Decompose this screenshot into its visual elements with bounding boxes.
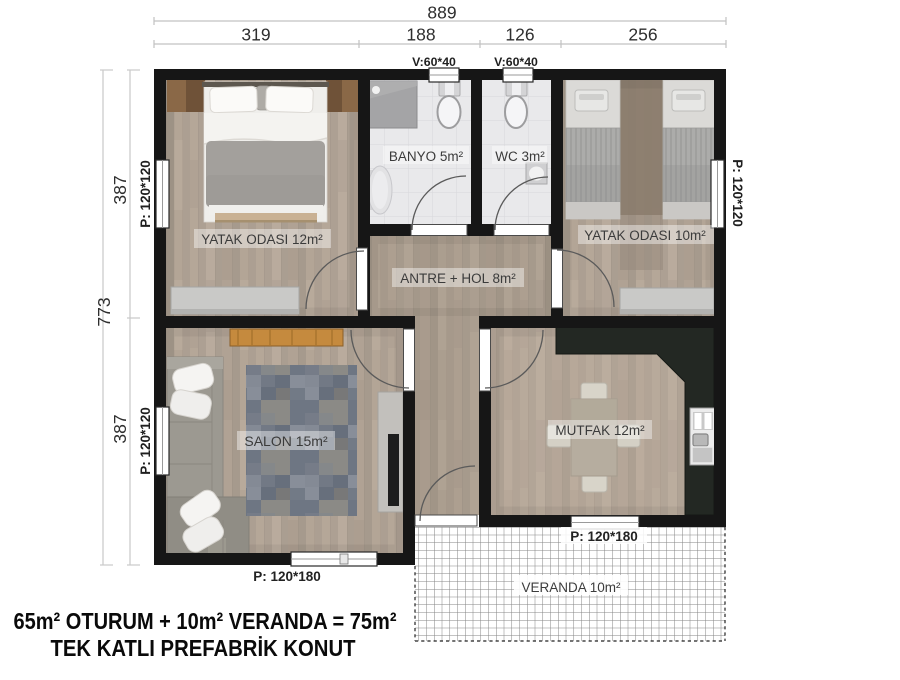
svg-text:ANTRE + HOL 8m²: ANTRE + HOL 8m²: [400, 271, 516, 286]
svg-text:VERANDA 10m²: VERANDA 10m²: [521, 580, 621, 595]
svg-text:P: 120*120: P: 120*120: [138, 407, 153, 475]
svg-text:V:60*40: V:60*40: [412, 55, 456, 69]
svg-text:319: 319: [241, 25, 270, 45]
svg-text:P: 120*180: P: 120*180: [570, 529, 638, 544]
svg-text:387: 387: [110, 414, 130, 443]
svg-text:P: 120*180: P: 120*180: [253, 569, 321, 584]
svg-text:256: 256: [628, 25, 657, 45]
svg-text:126: 126: [505, 25, 534, 45]
svg-text:MUTFAK 12m²: MUTFAK 12m²: [555, 423, 645, 438]
svg-text:P: 120*120: P: 120*120: [138, 160, 153, 228]
svg-text:773: 773: [94, 297, 114, 326]
svg-text:188: 188: [406, 25, 435, 45]
svg-text:889: 889: [427, 3, 456, 23]
svg-text:P: 120*120: P: 120*120: [730, 159, 745, 227]
svg-text:65m² OTURUM + 10m² VERANDA = 7: 65m² OTURUM + 10m² VERANDA = 75m²: [14, 608, 397, 634]
svg-text:V:60*40: V:60*40: [494, 55, 538, 69]
svg-text:SALON 15m²: SALON 15m²: [244, 433, 328, 449]
svg-text:387: 387: [110, 175, 130, 204]
svg-text:YATAK ODASI 10m²: YATAK ODASI 10m²: [584, 228, 706, 243]
svg-text:YATAK ODASI 12m²: YATAK ODASI 12m²: [201, 232, 323, 247]
svg-text:WC 3m²: WC 3m²: [495, 149, 545, 164]
svg-text:TEK KATLI PREFABRİK KONUT: TEK KATLI PREFABRİK KONUT: [51, 635, 357, 661]
svg-text:BANYO 5m²: BANYO 5m²: [389, 149, 464, 164]
